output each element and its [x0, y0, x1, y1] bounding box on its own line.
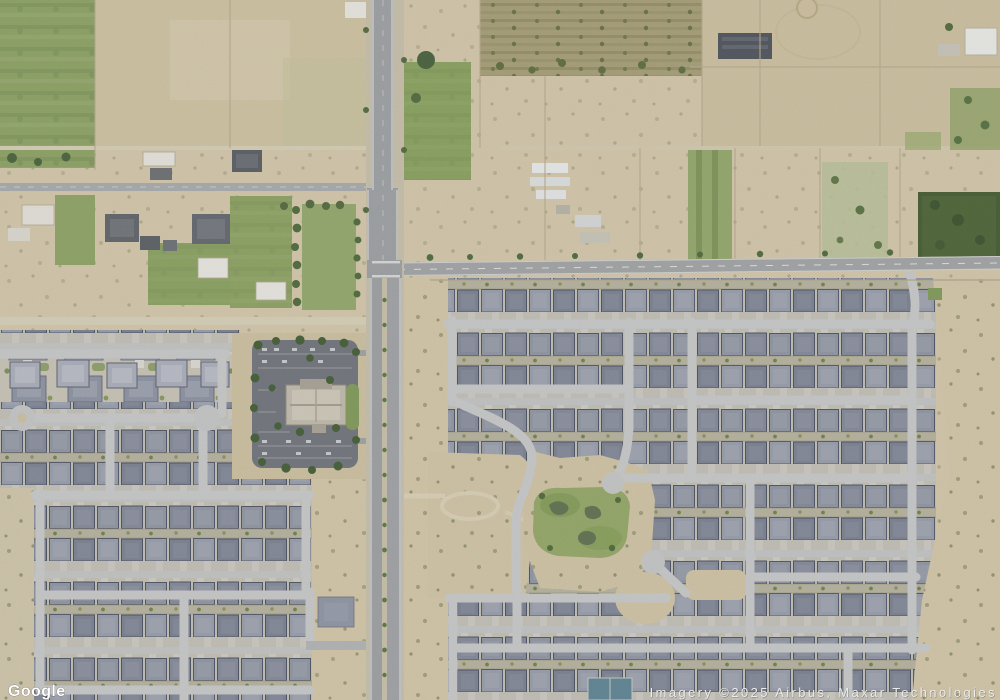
svg-text:Imagery ©2025 Airbus, Maxar Te: Imagery ©2025 Airbus, Maxar Technologies — [650, 685, 997, 700]
svg-text:Google: Google — [8, 683, 66, 700]
